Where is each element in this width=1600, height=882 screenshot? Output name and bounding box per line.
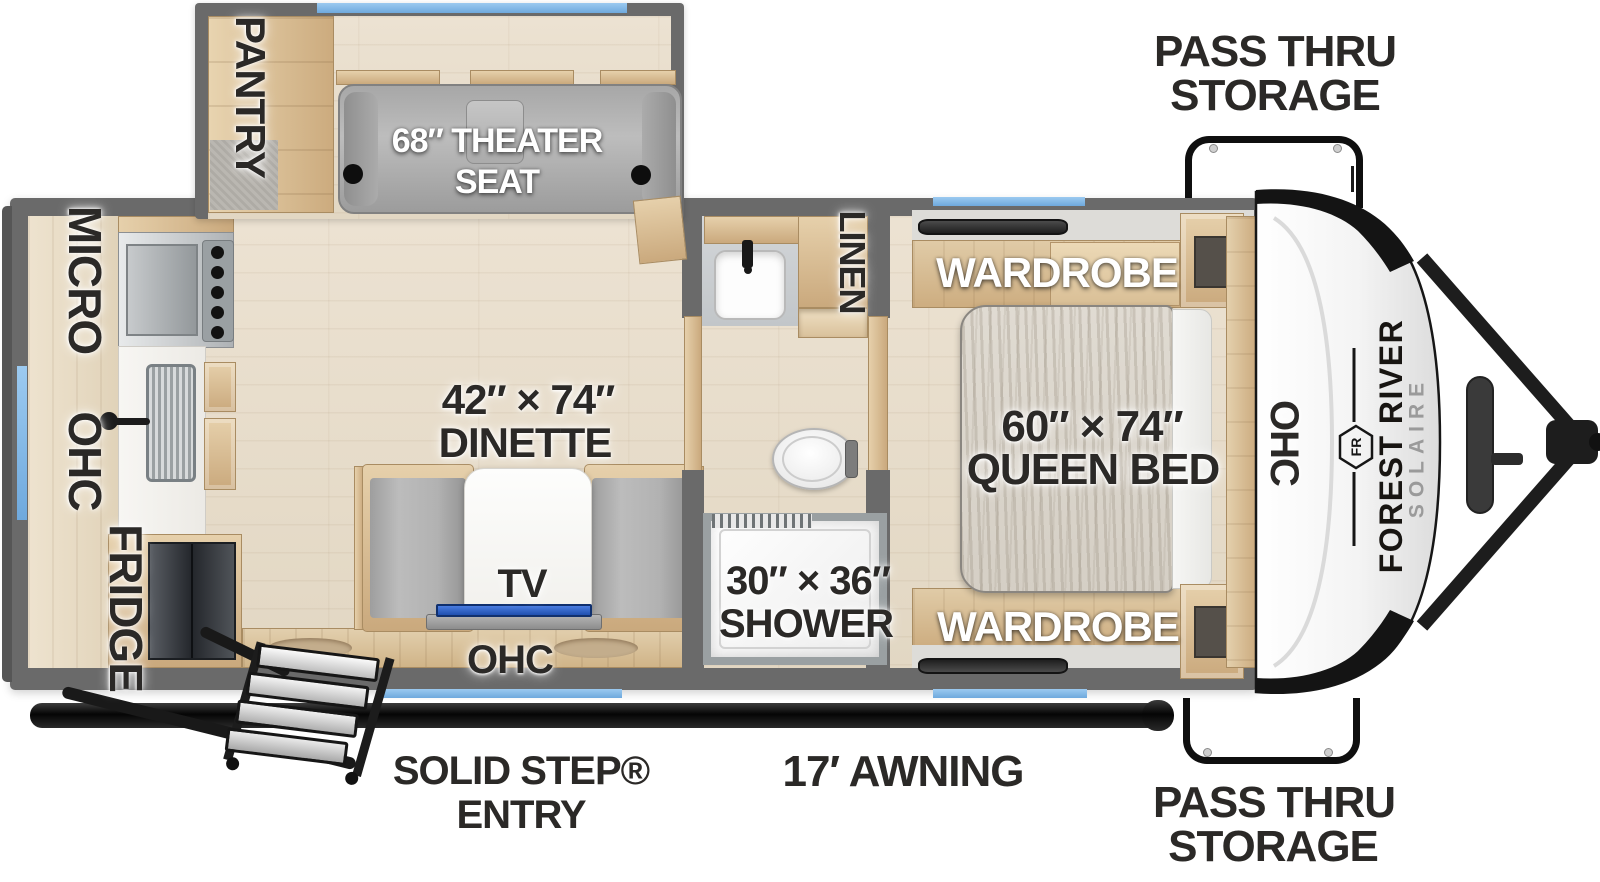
brand-solaire-label: SOLAIRE: [1407, 376, 1428, 518]
hitch-beam-upper: [1422, 258, 1580, 438]
cupholder-icon: [343, 164, 363, 184]
kitchen-cabinet-door: [204, 418, 236, 490]
fridge-label: FRIDGE: [103, 524, 149, 692]
sofa-side-table: [633, 196, 687, 265]
sofa-trim-tab: [336, 70, 440, 85]
window-strip-rear: [17, 366, 27, 520]
kitchen-cabinet-door: [204, 362, 236, 412]
faucet-icon: [744, 266, 752, 274]
screw-icon: [1333, 144, 1342, 153]
sofa-armrest: [642, 92, 676, 206]
screw-icon: [1324, 748, 1333, 757]
tv-label: TV: [497, 564, 546, 604]
theater-seat-label-line2: SEAT: [455, 165, 539, 199]
bed-label: QUEEN BED: [967, 448, 1220, 492]
bedroom-door-jamb: [868, 316, 888, 472]
shower-size-label: 30″ × 36″: [726, 561, 890, 601]
bathroom-wall-left-lower: [682, 470, 704, 668]
pass-thru-bottom-label-line1: PASS THRU: [1153, 781, 1395, 825]
dinette-name-label: DINETTE: [439, 422, 612, 464]
window-strip-bedroom-top: [933, 197, 1085, 206]
screw-icon: [1203, 748, 1212, 757]
pass-thru-bottom-label-line2: STORAGE: [1168, 825, 1378, 869]
bench-cushion: [370, 478, 466, 618]
sofa-armrest: [344, 92, 378, 206]
micro-label: MICRO: [62, 206, 108, 354]
entry-steps: [224, 641, 390, 798]
tongue-jack-arm: [1491, 453, 1523, 465]
floorplan-canvas: PASS THRU STORAGE PANTRY 68″ THEATER SEA…: [0, 0, 1600, 882]
fridge-door-split: [191, 544, 193, 658]
awning-label: 17′ AWNING: [783, 750, 1024, 794]
brand-forest-river-label: FOREST RIVER: [1375, 319, 1407, 573]
theater-seat-label-line1: 68″ THEATER: [392, 124, 603, 158]
entry-door-strip: [378, 689, 622, 698]
pass-thru-top-label-line1: PASS THRU: [1154, 30, 1396, 74]
burner-icon: [211, 266, 224, 279]
window-strip-slideout: [317, 3, 627, 13]
solid-step-label-line2: ENTRY: [456, 795, 585, 835]
wardrobe-top-label: WARDROBE: [936, 252, 1178, 294]
awning-end-cap: [1142, 700, 1174, 731]
linen-label: LINEN: [834, 211, 870, 314]
bedroom-window-slot-top: [918, 219, 1068, 235]
sofa-trim-tab: [600, 70, 676, 85]
fr-monogram-label: FR: [1349, 438, 1363, 457]
shower-glass-ribs: [712, 514, 812, 528]
toilet-seat-ring: [782, 436, 842, 482]
cupholder-icon: [631, 165, 651, 185]
step-foot: [344, 771, 358, 785]
faucet-icon: [742, 240, 753, 268]
antenna-line: [1351, 166, 1354, 192]
burner-icon: [211, 306, 224, 319]
counter-recess: [554, 638, 638, 658]
window-strip-bedroom-bottom: [933, 689, 1087, 698]
burner-icon: [211, 286, 224, 299]
pass-thru-top-label-line2: STORAGE: [1170, 74, 1380, 118]
bedroom-ohc-label: OHC: [1264, 400, 1304, 486]
wardrobe-bottom-label: WARDROBE: [937, 606, 1179, 648]
screw-icon: [1209, 144, 1218, 153]
dinette-ohc-label: OHC: [467, 640, 553, 680]
solid-step-label-line1: SOLID STEP®: [393, 751, 649, 791]
bathroom-door-jamb: [684, 316, 702, 472]
kitchen-sink: [146, 364, 196, 482]
kitchen-ohc-label: OHC: [62, 411, 108, 510]
rear-bumper: [2, 206, 12, 682]
bedroom-window-slot-bottom: [918, 658, 1068, 674]
bed-size-label: 60″ × 74″: [1001, 405, 1182, 449]
toilet-hinge: [845, 440, 858, 478]
bench-cushion: [592, 478, 688, 618]
burner-icon: [211, 326, 224, 339]
hitch-beam-lower: [1422, 446, 1580, 626]
sofa-trim-tab: [470, 70, 574, 85]
faucet-icon: [114, 418, 150, 425]
bathroom-wall-left: [682, 216, 704, 318]
dinette-size-label: 42″ × 74″: [442, 379, 615, 421]
step-foot: [225, 757, 239, 771]
shower-label: SHOWER: [719, 604, 893, 644]
burner-icon: [211, 246, 224, 259]
stove-oven-line: [126, 244, 198, 336]
tongue-jack: [1467, 377, 1493, 513]
pantry-label: PANTRY: [229, 16, 271, 178]
